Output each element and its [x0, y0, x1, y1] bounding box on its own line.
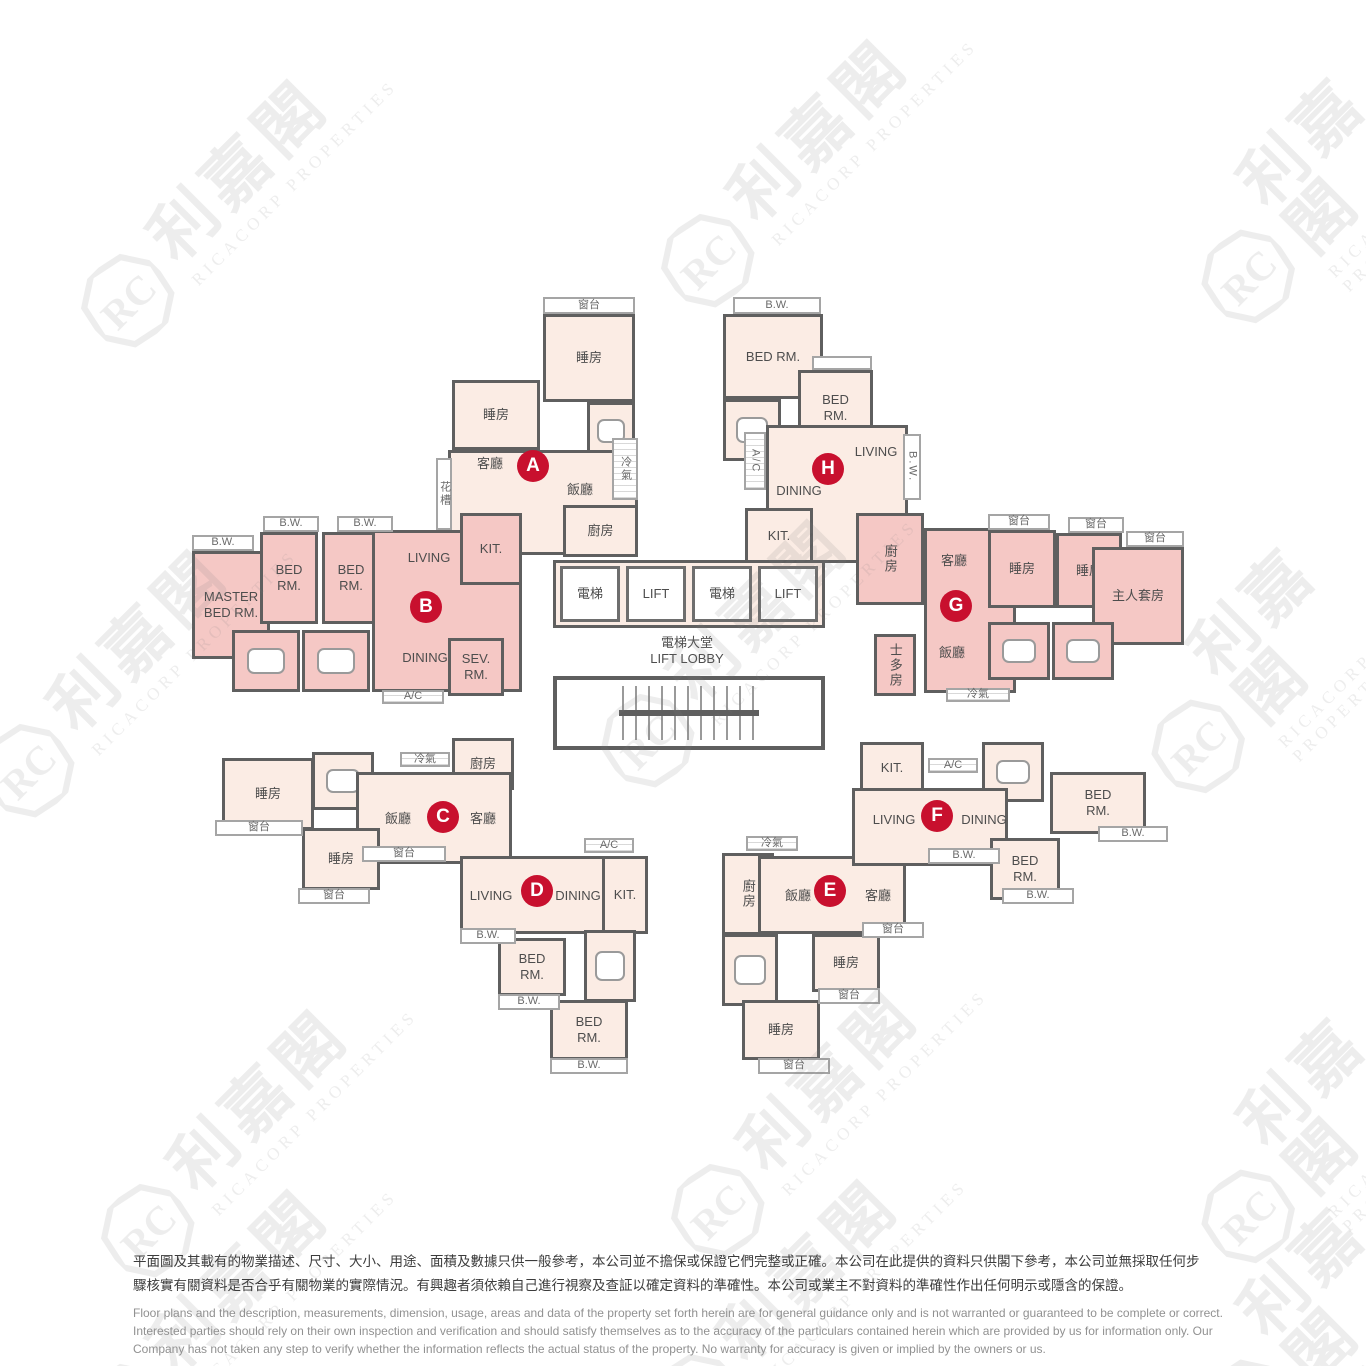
unit-G-bathroom-1 — [988, 622, 1050, 680]
unit-G-bay-window-2: 窗台 — [1068, 517, 1124, 533]
unit-G-kitchen: 廚房 — [856, 513, 924, 605]
unit-F-bay-window-2: B.W. — [928, 848, 1000, 864]
unit-D-bay-window-2: B.W. — [498, 994, 560, 1010]
unit-G-bay-window-3: 窗台 — [1126, 531, 1184, 547]
unit-B-ac-platform: A/C — [382, 690, 444, 704]
unit-E-ac-platform: 冷氣 — [746, 836, 798, 851]
unit-D-bathroom — [584, 930, 636, 1002]
unit-D-unit-badge: D — [521, 875, 553, 907]
unit-B-dining-label: DINING — [394, 646, 456, 670]
unit-B-living-label: LIVING — [398, 546, 460, 570]
unit-B-servant-room: SEV. RM. — [448, 638, 504, 696]
unit-B-bathroom-2 — [302, 630, 370, 692]
unit-H-unit-badge: H — [812, 453, 844, 485]
unit-G-dining-label: 飯廳 — [924, 640, 980, 666]
unit-F-bedroom-1: BED RM. — [1050, 772, 1146, 834]
unit-D-dining-label: DINING — [551, 884, 605, 908]
unit-C-bay-window-2: 窗台 — [362, 846, 446, 862]
core-lift-lobby-label: 電梯大堂 LIFT LOBBY — [617, 632, 757, 670]
unit-A-ac-platform: 冷氣 — [612, 438, 638, 500]
unit-C-ac-platform: 冷氣 — [400, 752, 450, 767]
unit-G-ac-platform: 冷氣 — [946, 688, 1010, 702]
unit-B-kitchen: KIT. — [460, 513, 522, 585]
unit-F-dining-label: DINING — [954, 808, 1014, 832]
unit-A-bay-window-1: 窗台 — [543, 297, 635, 314]
unit-D-ac-platform: A/C — [584, 838, 634, 853]
unit-A-planter: 花槽 — [436, 458, 452, 530]
unit-D-bay-window-3: B.W. — [550, 1058, 628, 1074]
floor-plan: 窗台睡房睡房花槽冷氣廚房客廳A飯廳B.W.BED RM.BED RM.A/CB.… — [0, 0, 1366, 1366]
unit-C-bay-window-3: 窗台 — [298, 888, 370, 904]
unit-A-kitchen: 廚房 — [563, 505, 638, 557]
disclaimer-en-line1: Floor plans and the description, measure… — [133, 1304, 1238, 1322]
unit-H-bay-window-1: B.W. — [733, 297, 821, 314]
unit-F-unit-badge: F — [921, 800, 953, 832]
unit-G-living-label: 客廳 — [926, 548, 982, 574]
unit-C-unit-badge: C — [427, 801, 459, 833]
unit-B-bedroom-1: BED RM. — [260, 532, 318, 624]
unit-G-store-room: 士多房 — [874, 634, 916, 696]
unit-H-living-label: LIVING — [845, 440, 907, 464]
unit-E-unit-badge: E — [814, 875, 846, 907]
unit-D-kitchen: KIT. — [602, 856, 648, 934]
core-lift-2: LIFT — [626, 566, 686, 622]
unit-G-bathroom-2 — [1052, 622, 1114, 680]
unit-E-bedroom-2: 睡房 — [742, 1000, 820, 1060]
unit-C-dining-label: 飯廳 — [370, 806, 426, 832]
disclaimer: 平面圖及其載有的物業描述、尺寸、大小、用途、面積及數據只供一般參考，本公司並不擔… — [133, 1250, 1238, 1358]
unit-E-bay-window-1: 窗台 — [862, 922, 924, 938]
unit-B-bay-window-2: B.W. — [263, 516, 319, 532]
unit-D-bedroom-1: BED RM. — [498, 938, 566, 996]
unit-A-unit-badge: A — [517, 450, 549, 482]
unit-B-bay-window-1: B.W. — [192, 535, 254, 551]
unit-A-living-label: 客廳 — [462, 450, 518, 478]
unit-H-bay-window-2 — [812, 356, 872, 370]
unit-H-kitchen: KIT. — [745, 508, 813, 563]
unit-E-bay-window-3: 窗台 — [758, 1058, 830, 1074]
core-lift-3: 電梯 — [692, 566, 752, 622]
unit-A-bedroom-2: 睡房 — [452, 380, 540, 450]
unit-E-living-label: 客廳 — [852, 884, 904, 908]
unit-F-living-label: LIVING — [864, 808, 924, 832]
unit-E-bedroom-1: 睡房 — [812, 934, 880, 992]
unit-G-bay-window-1: 窗台 — [988, 514, 1050, 530]
unit-F-bay-window-1: B.W. — [1098, 826, 1168, 842]
unit-D-bay-window-1: B.W. — [460, 928, 516, 944]
core-lift-4: LIFT — [758, 566, 818, 622]
disclaimer-en-line2: Interested parties should rely on their … — [133, 1322, 1238, 1340]
unit-F-kitchen: KIT. — [860, 742, 924, 794]
disclaimer-en-line3: Company has not taken any step to verify… — [133, 1340, 1238, 1358]
disclaimer-zh-line1: 平面圖及其載有的物業描述、尺寸、大小、用途、面積及數據只供一般參考，本公司並不擔… — [133, 1250, 1238, 1274]
unit-E-bay-window-2: 窗台 — [818, 988, 880, 1004]
unit-G-unit-badge: G — [940, 590, 972, 622]
unit-B-bay-window-3: B.W. — [337, 516, 393, 532]
unit-F-ac-platform: A/C — [928, 758, 978, 773]
core-staircase — [553, 676, 825, 750]
unit-D-bedroom-2: BED RM. — [550, 1000, 628, 1060]
disclaimer-zh-line2: 驟核實有關資料是否合乎有關物業的實際情況。有興趣者須依賴自己進行視察及查証以確定… — [133, 1274, 1238, 1298]
unit-F-bay-window-3: B.W. — [1002, 888, 1074, 904]
unit-B-bathroom-1 — [232, 630, 300, 692]
unit-D-living-label: LIVING — [462, 884, 520, 908]
unit-A-dining-label: 飯廳 — [552, 476, 608, 504]
unit-C-living-label: 客廳 — [455, 806, 511, 832]
unit-B-unit-badge: B — [410, 591, 442, 623]
unit-C-bay-window-1: 窗台 — [215, 820, 303, 836]
unit-H-ac-platform: A/C — [744, 432, 766, 490]
unit-E-bathroom — [722, 934, 778, 1006]
floor-plan-page: 窗台睡房睡房花槽冷氣廚房客廳A飯廳B.W.BED RM.BED RM.A/CB.… — [0, 0, 1366, 1366]
unit-A-bedroom-1: 睡房 — [543, 314, 635, 402]
core-lift-1: 電梯 — [560, 566, 620, 622]
unit-G-bedroom-1: 睡房 — [988, 530, 1056, 608]
